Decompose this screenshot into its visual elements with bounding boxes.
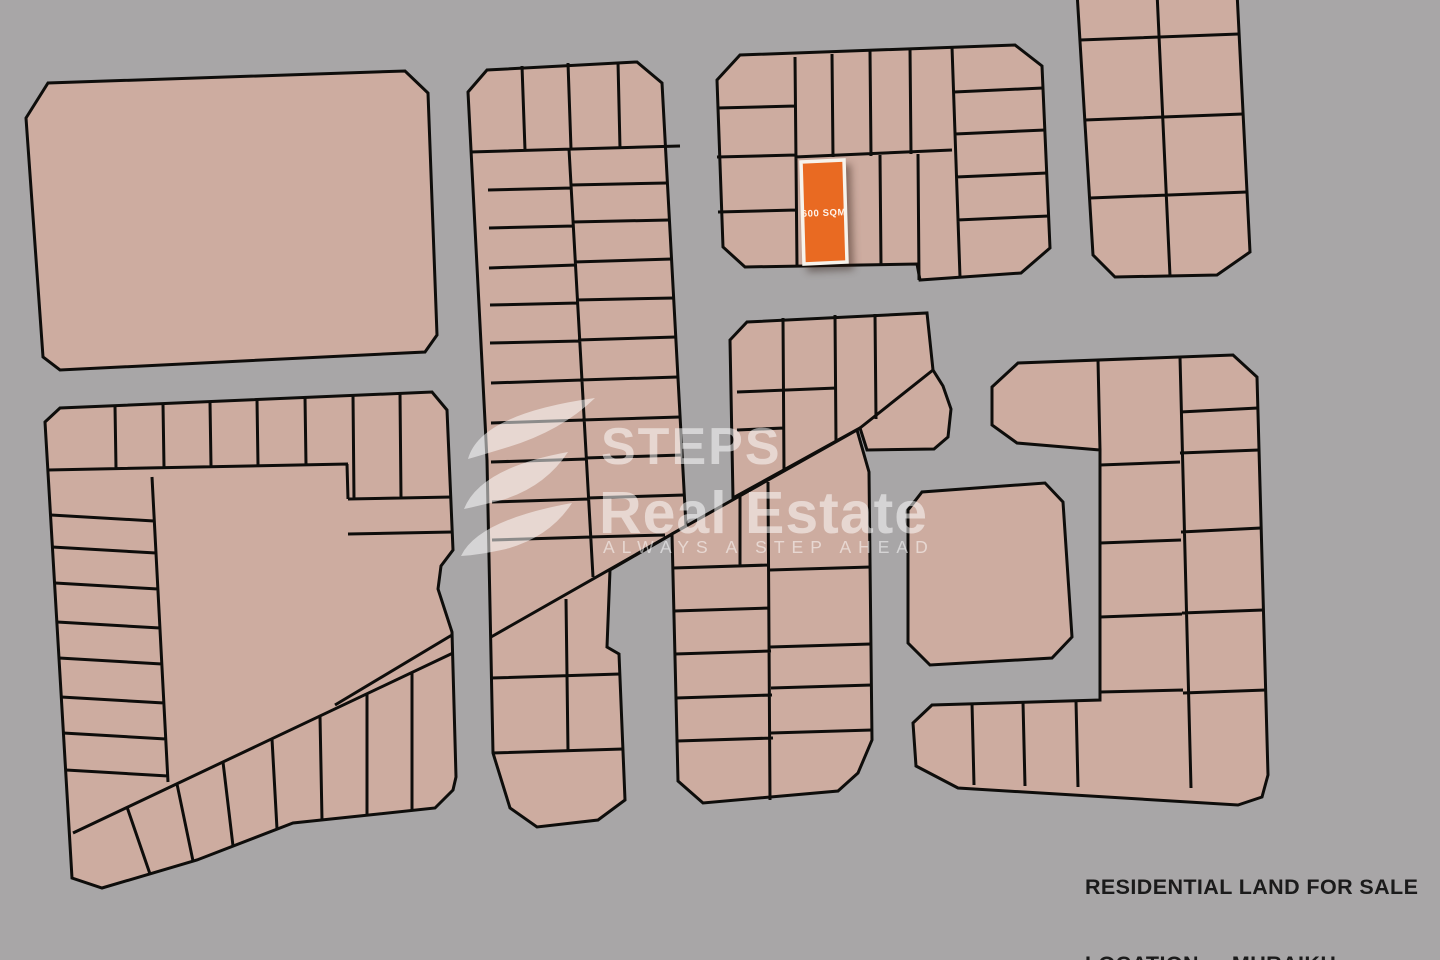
block-a-large-parcel [26,71,437,370]
caption-title: RESIDENTIAL LAND FOR SALE [1085,875,1418,901]
land-plot-flyer: 600 SQM STEPS Real Estate ALWAYS A STEP … [0,0,1440,960]
block-c-outline [717,45,1050,280]
highlighted-plot-600sqm: 600 SQM [801,160,847,264]
highlighted-plot-label: 600 SQM [802,207,847,220]
listing-caption: RESIDENTIAL LAND FOR SALE LOCATION : MUR… [1085,824,1418,960]
caption-location: LOCATION : MURAIKH [1085,952,1418,960]
block-f-square-parcel [908,483,1072,665]
watermark-brand-text: STEPS [601,418,782,476]
plot-map-canvas: 600 SQM STEPS Real Estate ALWAYS A STEP … [0,0,1440,960]
watermark-tagline-text: ALWAYS A STEP AHEAD [603,537,935,557]
